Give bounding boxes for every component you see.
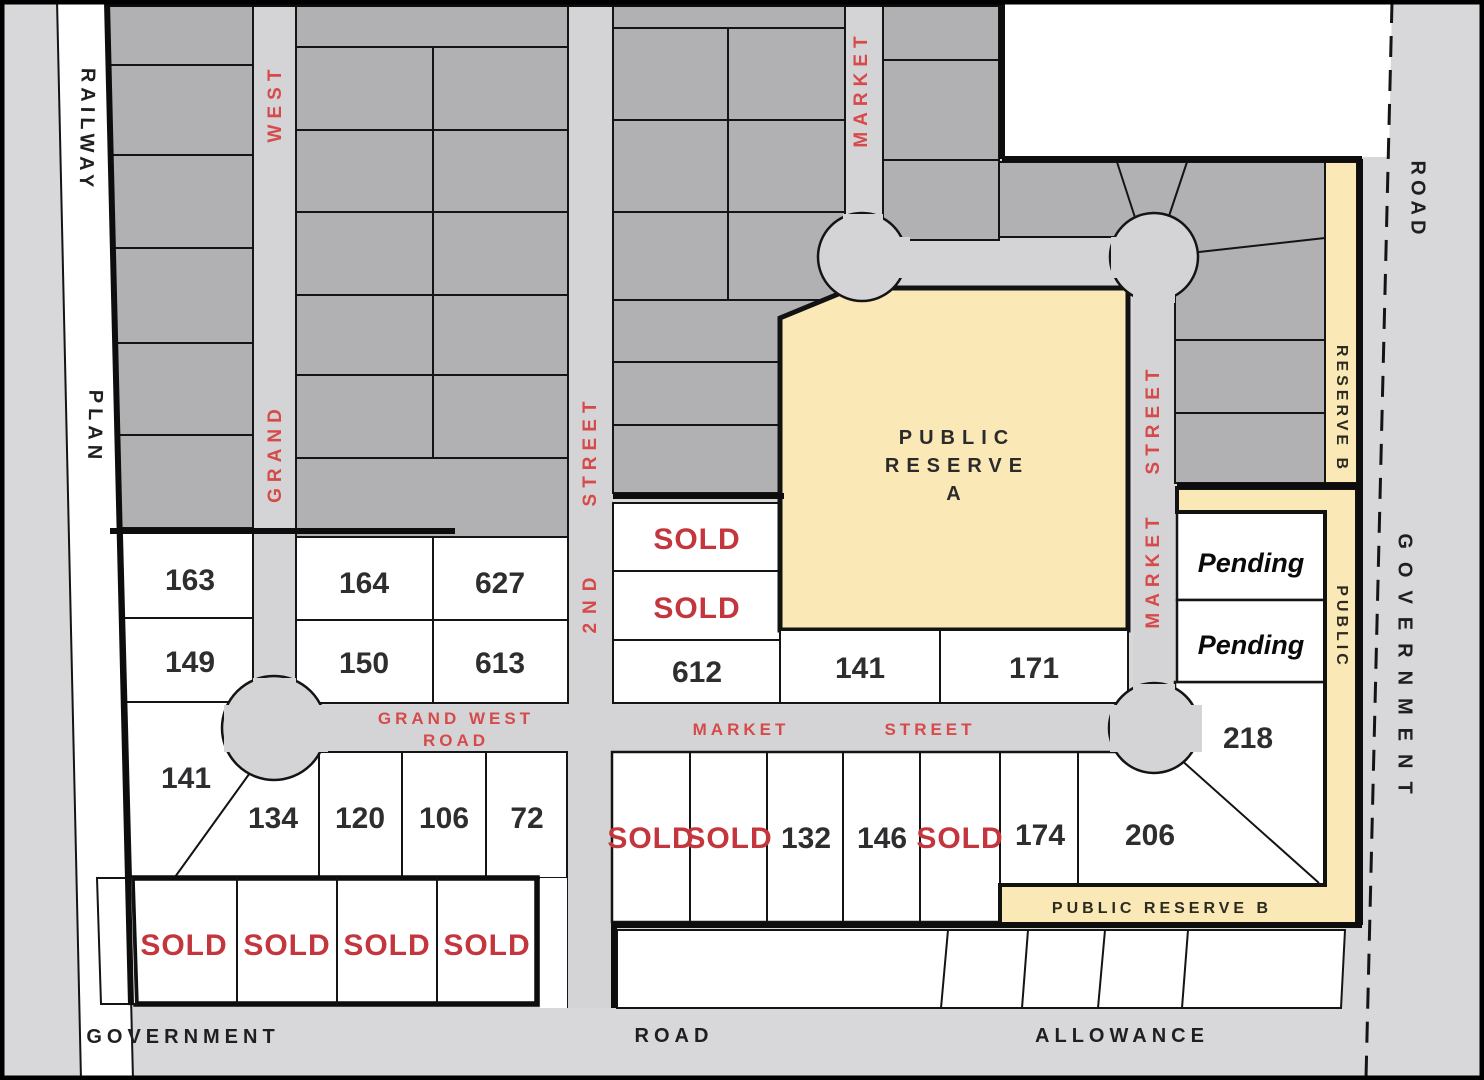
lot-label-141-market: 141 (835, 652, 885, 685)
lot-label-106: 106 (419, 802, 469, 835)
bend-patch (1110, 705, 1202, 752)
plat-map: RAILWAY PLAN WEST GRAND STREET 2ND MARKE… (0, 0, 1484, 1080)
block-bottom-strip (617, 930, 1345, 1008)
reserve-b-public-label: PUBLIC (1333, 585, 1350, 669)
reserve-b-ne-label: RESERVE B (1333, 345, 1350, 473)
lot-label-pending-2: Pending (1198, 630, 1305, 660)
second-street-south (567, 752, 612, 1008)
lot-label-132: 132 (781, 822, 831, 855)
lot-label-613: 613 (475, 647, 525, 680)
street-label-2nd: 2ND (580, 568, 601, 633)
lot-label-sold-a1: SOLD (653, 523, 740, 556)
second-street-north (568, 2, 613, 752)
reserve-a-label-2: RESERVE (885, 455, 1029, 477)
unsubdivided-area (1005, 0, 1392, 157)
railway-label: RAILWAY (75, 68, 99, 193)
street-label-2nd-street: STREET (580, 396, 601, 507)
bend-patch (1133, 237, 1175, 303)
lot-label-149: 149 (165, 646, 215, 679)
lot-label-164: 164 (339, 567, 389, 600)
lot-label-150: 150 (339, 647, 389, 680)
lot-label-sold-g4: SOLD (443, 929, 530, 962)
reserve-b-bottom-label: PUBLIC RESERVE B (1052, 900, 1272, 917)
bend-patch (880, 237, 910, 278)
lot-label-171: 171 (1009, 652, 1059, 685)
street-label-grand-west-road-1: GRAND WEST (378, 709, 534, 728)
plan-label: PLAN (83, 390, 106, 465)
lot-label-sold-s2: SOLD (685, 822, 772, 855)
reserve-a-label-3: A (946, 483, 967, 505)
market-street-east-vertical (1133, 237, 1175, 752)
street-label-grand: GRAND (265, 403, 286, 503)
lot-label-sold-g3: SOLD (343, 929, 430, 962)
reserve-a-label-1: PUBLIC (899, 427, 1015, 449)
lot-label-pending-1: Pending (1198, 548, 1305, 578)
block-west-gray-lots (108, 2, 253, 528)
lot-label-sold-s3: SOLD (916, 822, 1003, 855)
gap-strip (540, 878, 567, 1008)
street-label-market-east-market: MARKET (1143, 511, 1164, 628)
street-label-grand-west-road-2: ROAD (423, 731, 489, 750)
lot-label-sold-a2: SOLD (653, 592, 740, 625)
lot-label-163: 163 (165, 564, 215, 597)
street-label-west: WEST (265, 64, 286, 143)
lot-label-146: 146 (857, 822, 907, 855)
government-e-label: GOVERNMENT (1394, 533, 1416, 806)
lot-label-612: 612 (672, 656, 722, 689)
lot-label-120: 120 (335, 802, 385, 835)
lot-label-627: 627 (475, 567, 525, 600)
lot-label-sold-g1: SOLD (140, 929, 227, 962)
road-s-label: ROAD (635, 1025, 714, 1047)
bend-patch (224, 705, 328, 752)
lot-label-72: 72 (510, 802, 543, 835)
lot-label-174: 174 (1015, 819, 1065, 852)
lot-label-206: 206 (1125, 819, 1175, 852)
lot-label-sold-g2: SOLD (243, 929, 330, 962)
lot-label-141-west: 141 (161, 762, 211, 795)
street-label-market-h: MARKET (693, 720, 790, 739)
street-label-market-north: MARKET (851, 30, 872, 147)
lot-label-134: 134 (248, 802, 298, 835)
government-s-label: GOVERNMENT (86, 1026, 279, 1048)
street-label-street-h: STREET (884, 720, 975, 739)
street-label-market-east-street: STREET (1143, 364, 1164, 475)
road-ne-label: ROAD (1407, 161, 1429, 240)
lot-label-sold-s1: SOLD (607, 822, 694, 855)
bend-patch (843, 214, 883, 278)
allowance-label: ALLOWANCE (1035, 1025, 1209, 1047)
lot-label-218: 218 (1223, 722, 1273, 755)
block-market-east-gray (883, 2, 999, 240)
